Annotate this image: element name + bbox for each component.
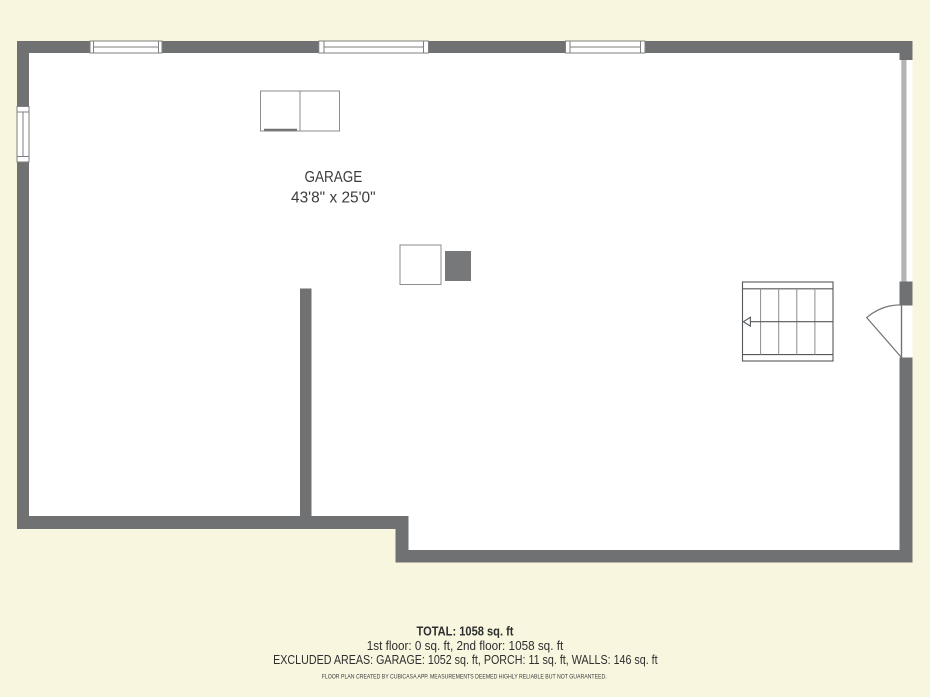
svg-text:FLOOR PLAN CREATED BY CUBICASA: FLOOR PLAN CREATED BY CUBICASA APP. MEAS… bbox=[322, 674, 607, 681]
svg-text:GARAGE: GARAGE bbox=[305, 169, 363, 186]
svg-text:1st floor: 0 sq. ft, 2nd floor: 1st floor: 0 sq. ft, 2nd floor: 1058 sq.… bbox=[367, 638, 564, 653]
svg-text:43'8" x 25'0": 43'8" x 25'0" bbox=[291, 190, 376, 207]
svg-text:TOTAL: 1058 sq. ft: TOTAL: 1058 sq. ft bbox=[417, 624, 515, 639]
svg-text:EXCLUDED AREAS: GARAGE: 1052 s: EXCLUDED AREAS: GARAGE: 1052 sq. ft, POR… bbox=[273, 652, 658, 667]
